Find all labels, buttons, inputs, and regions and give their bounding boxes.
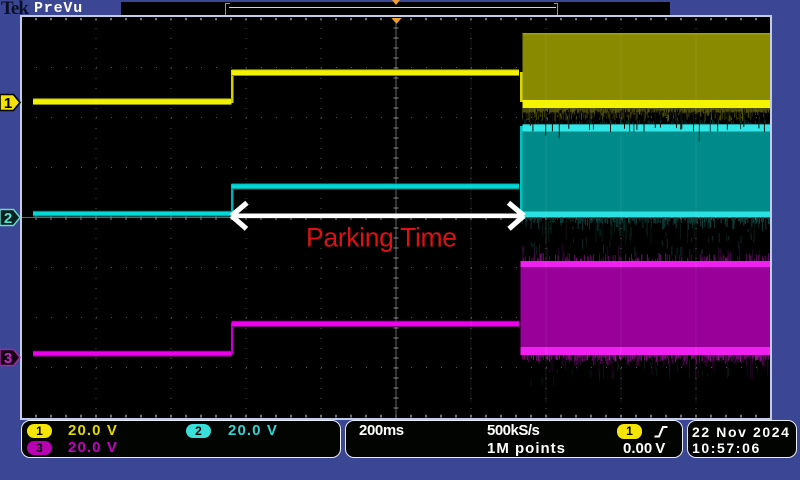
svg-text:1: 1 xyxy=(4,95,12,112)
svg-text:2: 2 xyxy=(4,210,12,227)
svg-text:3: 3 xyxy=(4,350,12,367)
svg-text:Parking Time: Parking Time xyxy=(306,222,457,252)
